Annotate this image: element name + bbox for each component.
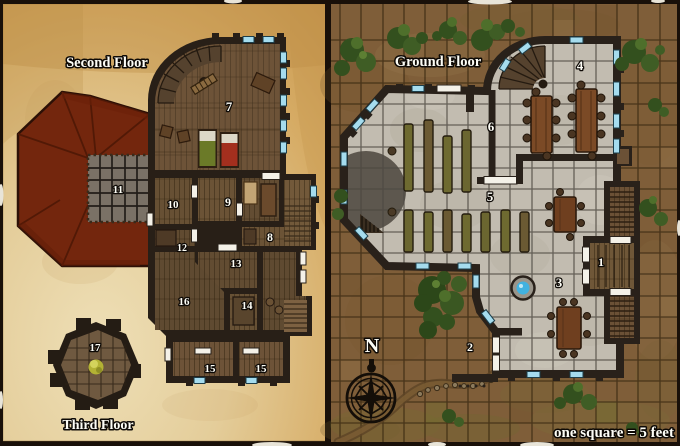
svg-text:5: 5	[487, 189, 494, 204]
svg-text:15: 15	[256, 363, 268, 375]
svg-text:4: 4	[577, 58, 584, 73]
svg-text:Second Floor: Second Floor	[66, 55, 148, 71]
svg-text:Third Floor: Third Floor	[62, 418, 133, 433]
svg-text:6: 6	[488, 119, 495, 134]
svg-text:10: 10	[168, 199, 180, 211]
svg-text:16: 16	[179, 296, 191, 308]
svg-text:N: N	[365, 335, 380, 357]
svg-text:13: 13	[231, 258, 243, 270]
svg-text:11: 11	[113, 184, 123, 196]
svg-text:12: 12	[177, 243, 187, 254]
svg-text:8: 8	[267, 230, 273, 244]
svg-text:1: 1	[598, 255, 604, 269]
svg-text:7: 7	[226, 99, 233, 114]
svg-text:9: 9	[225, 195, 231, 209]
svg-text:one square = 5 feet: one square = 5 feet	[554, 425, 674, 441]
svg-text:Ground Floor: Ground Floor	[395, 54, 482, 70]
svg-text:3: 3	[556, 275, 563, 290]
svg-text:2: 2	[467, 340, 473, 354]
svg-text:17: 17	[90, 342, 102, 354]
svg-text:15: 15	[205, 363, 217, 375]
svg-text:14: 14	[242, 300, 254, 312]
